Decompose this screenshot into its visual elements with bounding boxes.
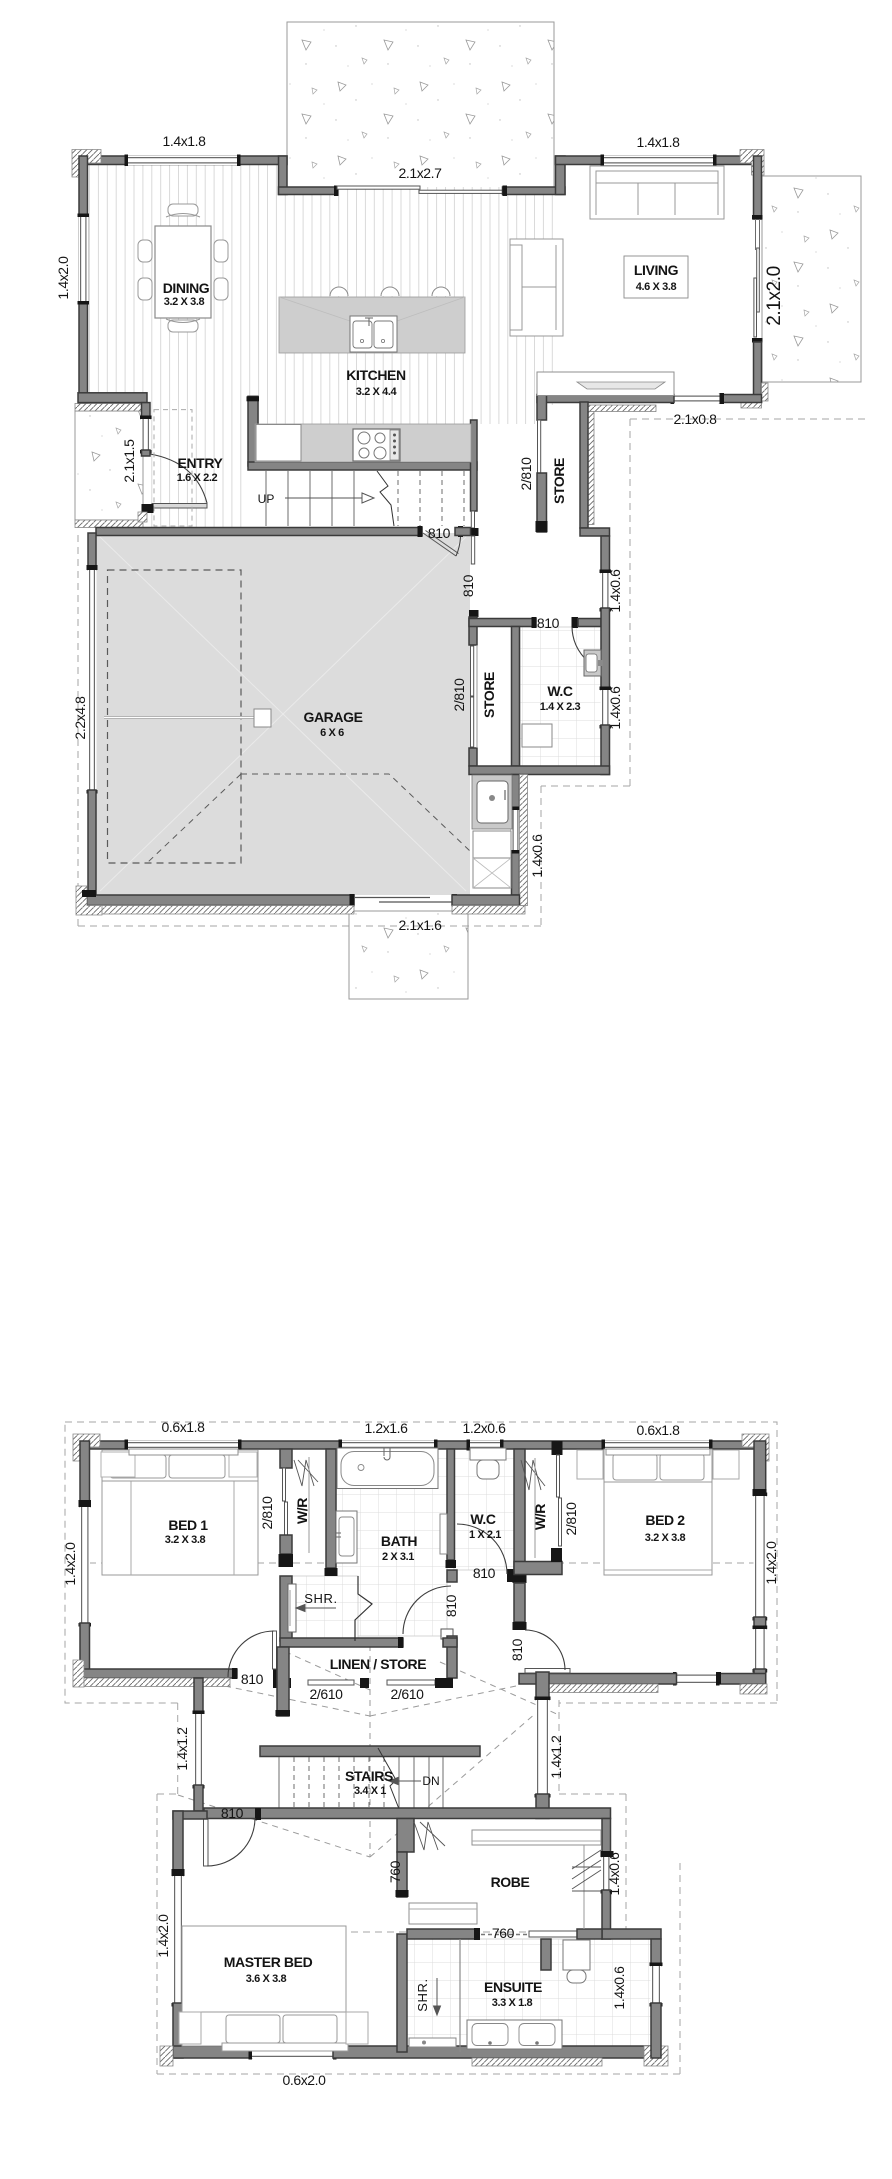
svg-text:0.6x1.8: 0.6x1.8 xyxy=(636,1422,680,1438)
svg-text:1.4x2.0: 1.4x2.0 xyxy=(62,1542,78,1586)
svg-text:1.4x0.6: 1.4x0.6 xyxy=(607,569,623,613)
svg-text:GARAGE: GARAGE xyxy=(303,709,362,725)
svg-text:2.2x4.8: 2.2x4.8 xyxy=(72,696,88,740)
svg-text:MASTER BED: MASTER BED xyxy=(224,1954,313,1970)
svg-text:1.4x0.6: 1.4x0.6 xyxy=(606,1852,622,1896)
svg-text:ROBE: ROBE xyxy=(491,1874,530,1890)
svg-text:760: 760 xyxy=(492,1925,515,1941)
svg-text:1.4x0.6: 1.4x0.6 xyxy=(529,834,545,878)
svg-text:2/810: 2/810 xyxy=(563,1502,579,1536)
svg-text:W.C: W.C xyxy=(470,1511,496,1527)
svg-text:810: 810 xyxy=(443,1594,459,1617)
svg-text:810: 810 xyxy=(509,1638,525,1661)
svg-text:LIVING: LIVING xyxy=(634,262,679,278)
svg-text:SHR.: SHR. xyxy=(304,1591,337,1606)
svg-text:3.2 X 3.8: 3.2 X 3.8 xyxy=(645,1532,686,1544)
svg-text:6 X 6: 6 X 6 xyxy=(320,727,344,739)
svg-text:2 X 3.1: 2 X 3.1 xyxy=(382,1551,414,1563)
svg-text:1.2x0.6: 1.2x0.6 xyxy=(462,1420,506,1436)
svg-text:W/R: W/R xyxy=(532,1504,548,1530)
svg-text:1.4x2.0: 1.4x2.0 xyxy=(55,256,71,300)
svg-text:3.2 X 4.4: 3.2 X 4.4 xyxy=(356,386,398,398)
svg-text:STAIRS: STAIRS xyxy=(345,1768,393,1784)
svg-text:ENTRY: ENTRY xyxy=(178,455,224,471)
svg-text:1 X 2.1: 1 X 2.1 xyxy=(469,1529,501,1541)
svg-text:2.1x2.0: 2.1x2.0 xyxy=(764,266,785,326)
svg-text:W/R: W/R xyxy=(294,1498,310,1524)
svg-text:0.6x2.0: 0.6x2.0 xyxy=(282,2072,326,2088)
svg-text:KITCHEN: KITCHEN xyxy=(346,367,406,383)
svg-text:810: 810 xyxy=(221,1805,244,1821)
svg-text:1.6 X 2.2: 1.6 X 2.2 xyxy=(177,472,218,484)
svg-text:810: 810 xyxy=(428,525,451,541)
svg-text:W.C: W.C xyxy=(547,683,573,699)
svg-text:2/610: 2/610 xyxy=(309,1686,343,1702)
svg-text:LINEN / STORE: LINEN / STORE xyxy=(330,1656,427,1672)
svg-text:BATH: BATH xyxy=(381,1533,418,1549)
svg-text:4.6 X 3.8: 4.6 X 3.8 xyxy=(636,281,677,293)
svg-text:DINING: DINING xyxy=(163,280,210,296)
svg-text:STORE: STORE xyxy=(551,458,567,504)
svg-text:760: 760 xyxy=(387,1860,403,1883)
svg-text:1.4x2.0: 1.4x2.0 xyxy=(763,1541,779,1585)
svg-text:3.6 X 3.8: 3.6 X 3.8 xyxy=(246,1973,287,1985)
svg-text:810: 810 xyxy=(473,1565,496,1581)
svg-text:SHR.: SHR. xyxy=(415,1978,430,2011)
svg-text:2/810: 2/810 xyxy=(259,1496,275,1530)
svg-text:1.4x1.2: 1.4x1.2 xyxy=(174,1727,190,1771)
svg-text:ENSUITE: ENSUITE xyxy=(484,1979,542,1995)
svg-text:2.1x1.5: 2.1x1.5 xyxy=(121,439,137,483)
svg-text:1.4x1.2: 1.4x1.2 xyxy=(548,1735,564,1779)
svg-text:2/610: 2/610 xyxy=(390,1686,424,1702)
svg-text:3.2 X 3.8: 3.2 X 3.8 xyxy=(165,1534,206,1546)
svg-text:UP: UP xyxy=(258,492,275,506)
svg-text:810: 810 xyxy=(537,615,560,631)
svg-text:BED 1: BED 1 xyxy=(168,1517,208,1533)
svg-text:2/810: 2/810 xyxy=(451,678,467,712)
svg-text:BED 2: BED 2 xyxy=(645,1512,685,1528)
svg-text:1.4x0.6: 1.4x0.6 xyxy=(611,1966,627,2010)
svg-text:3.4 X 1: 3.4 X 1 xyxy=(354,1785,386,1797)
svg-text:810: 810 xyxy=(460,574,476,597)
svg-text:2/810: 2/810 xyxy=(518,457,534,491)
svg-text:2.1x1.6: 2.1x1.6 xyxy=(398,917,442,933)
svg-text:810: 810 xyxy=(241,1671,264,1687)
svg-text:2.1x2.7: 2.1x2.7 xyxy=(398,165,442,181)
svg-text:1.2x1.6: 1.2x1.6 xyxy=(364,1420,408,1436)
svg-text:1.4x1.8: 1.4x1.8 xyxy=(162,133,206,149)
svg-text:STORE: STORE xyxy=(481,672,497,718)
svg-text:DN: DN xyxy=(422,1774,439,1788)
svg-text:1.4x1.8: 1.4x1.8 xyxy=(636,134,680,150)
svg-text:1.4x2.0: 1.4x2.0 xyxy=(155,1914,171,1958)
svg-text:1.4x0.6: 1.4x0.6 xyxy=(607,686,623,730)
svg-text:3.2 X 3.8: 3.2 X 3.8 xyxy=(164,296,205,308)
svg-text:1.4 X 2.3: 1.4 X 2.3 xyxy=(540,701,581,713)
svg-text:0.6x1.8: 0.6x1.8 xyxy=(161,1419,205,1435)
svg-text:2.1x0.8: 2.1x0.8 xyxy=(673,411,717,427)
svg-text:3.3 X 1.8: 3.3 X 1.8 xyxy=(492,1997,533,2009)
